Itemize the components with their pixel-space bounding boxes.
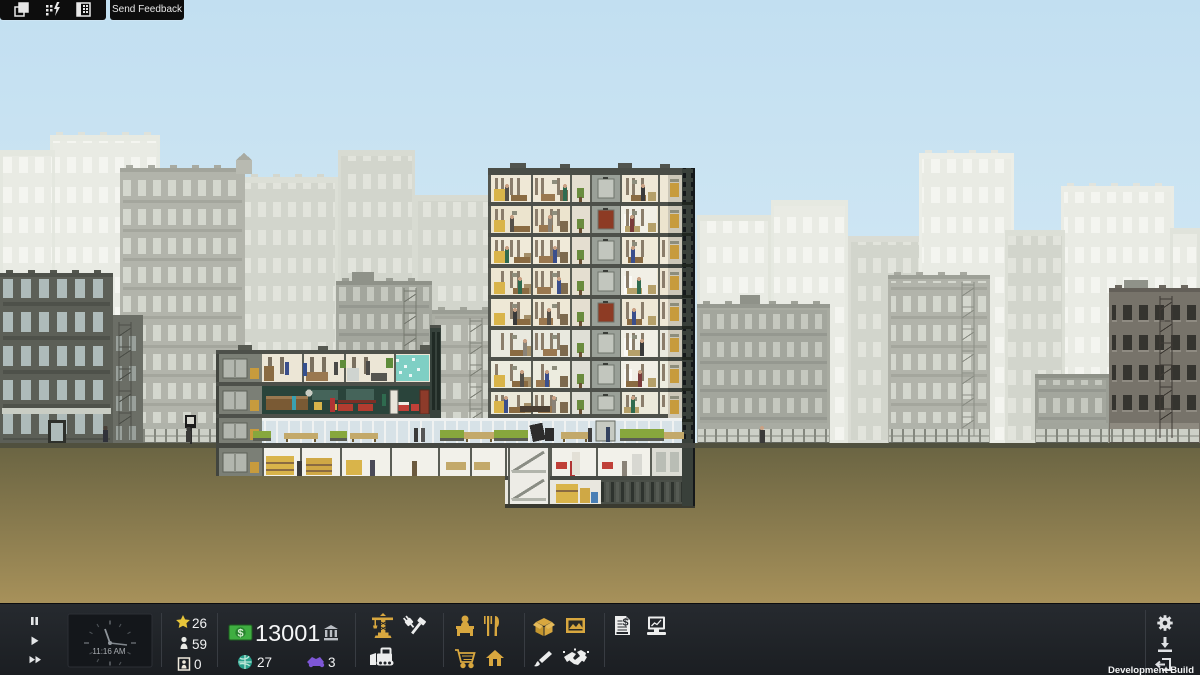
svg-text:26: 26	[192, 616, 207, 631]
svg-text:0: 0	[194, 657, 202, 672]
svg-text:27: 27	[257, 655, 272, 670]
svg-text:$: $	[237, 628, 243, 640]
svg-text:Development Build: Development Build	[1108, 665, 1194, 675]
svg-text:13001: 13001	[255, 620, 320, 646]
svg-text:59: 59	[192, 637, 207, 652]
svg-text:3: 3	[328, 655, 336, 670]
svg-text:$: $	[623, 617, 629, 629]
svg-text:11:16 AM: 11:16 AM	[92, 647, 126, 656]
